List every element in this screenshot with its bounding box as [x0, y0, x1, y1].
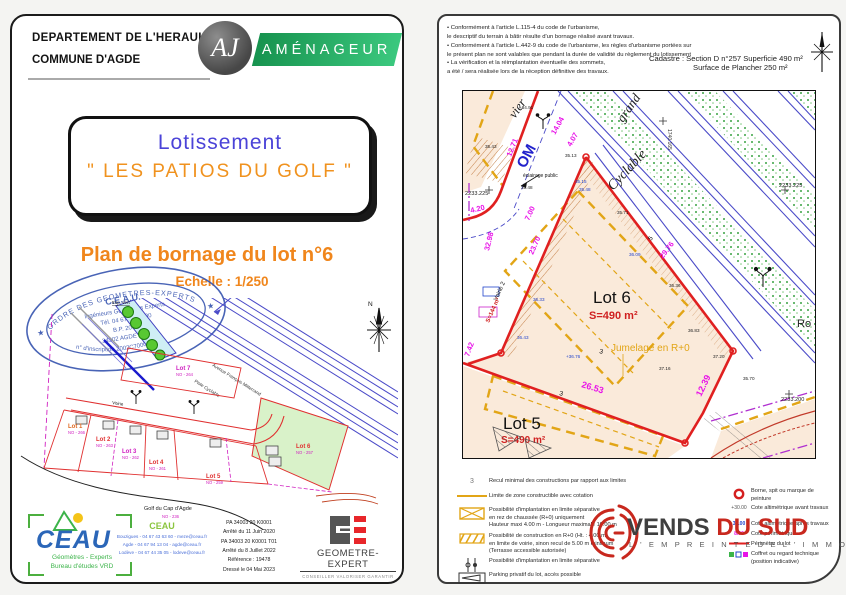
left-page: DEPARTEMENT DE L'HERAULT COMMUNE D'AGDE …: [10, 14, 404, 584]
contact-line: Bouzigues - 04 67 43 63 60 - meze@ceau.f…: [112, 533, 212, 541]
svg-text:14.04: 14.04: [549, 115, 567, 136]
lot6-area: S=490 m²: [589, 310, 638, 322]
golf-label: Golf du Cap d'Agde: [144, 506, 192, 512]
vends-wordmark: VENDS DU SUD: [627, 514, 808, 542]
svg-text:35.13: 35.13: [565, 153, 577, 158]
svg-text:2233.225: 2233.225: [465, 191, 488, 197]
svg-text:32.98: 32.98: [482, 231, 495, 251]
grid-top-label: 1740.165: [666, 129, 672, 150]
lot5-label: Lot 5: [503, 414, 541, 433]
svg-text:NO - 266: NO - 266: [68, 430, 86, 435]
svg-text:29.76: 29.76: [657, 240, 675, 260]
svg-text:36.33: 36.33: [533, 297, 545, 302]
separative-symbol: [463, 558, 481, 572]
svg-text:4.07: 4.07: [565, 131, 580, 148]
ro-fragment: Ro: [797, 318, 811, 330]
svg-text:NO - 257: NO - 257: [296, 450, 314, 455]
svg-text:NO - 236: NO - 236: [162, 514, 180, 519]
svg-text:36.43: 36.43: [517, 335, 529, 340]
svg-text:NO - 259: NO - 259: [206, 480, 224, 485]
department-title: DEPARTEMENT DE L'HERAULT: [32, 32, 212, 44]
contact-line: Agde - 04 67 94 13 04 - agde@ceau.fr: [112, 541, 212, 549]
legend-row: 3 Recul minimal des constructions par ra…: [455, 478, 626, 486]
geometre-expert-glyph: [326, 514, 370, 546]
street-label: Avenue François Mitterrand: [211, 363, 262, 397]
svg-text:35.43: 35.43: [485, 144, 497, 149]
parking-symbol: [458, 572, 486, 584]
esp-vert-label: Esp. vert: [112, 300, 131, 305]
permit-references: PA 34003 20 K0001 Arrêté du 11 Juin 2020…: [208, 519, 290, 575]
svg-text:36.83: 36.83: [688, 328, 700, 333]
lotissement-name: " LES PATIOS DU GOLF ": [71, 161, 369, 183]
svg-text:37.20: 37.20: [713, 354, 725, 359]
svg-text:2233.225: 2233.225: [779, 183, 802, 189]
jumelage-label: Jumelage en R+0: [611, 343, 690, 354]
amenageur-badge: AMÉNAGEUR: [252, 33, 402, 66]
bowtie-symbol: [459, 507, 485, 520]
commune-title: COMMUNE D'AGDE: [32, 54, 140, 66]
svg-text:36.09: 36.09: [629, 252, 641, 257]
lotissement-title: Lotissement: [71, 131, 369, 155]
ceau-contacts: CEAU Bouzigues - 04 67 43 63 60 - meze@c…: [112, 521, 212, 556]
north-arrow: [807, 30, 837, 74]
svg-text:35.48: 35.48: [579, 187, 591, 192]
geometre-expert-logo: GEOMETRE-EXPERT CONSEILLER VALORISER GAR…: [300, 514, 396, 579]
svg-text:7.00: 7.00: [523, 205, 537, 222]
title-box: Lotissement " LES PATIOS DU GOLF ": [68, 116, 372, 216]
s144-label: S=144 m²: [484, 297, 501, 324]
hatch-symbol: [459, 533, 485, 544]
borne-symbol: [733, 488, 745, 500]
overview-site-plan: Avenue François Mitterrand Piste Cyclabl…: [16, 298, 398, 530]
detail-plan: vier grand Cyclable 1740.165 OM éclairag…: [462, 90, 816, 459]
svg-text:NO - 263: NO - 263: [96, 443, 114, 448]
svg-text:35.71: 35.71: [617, 210, 629, 215]
ceau-logo-word: CEAU: [36, 526, 111, 555]
svg-text:37.16: 37.16: [659, 366, 671, 371]
header-divider: [28, 78, 210, 80]
svg-text:7.42: 7.42: [463, 341, 476, 358]
legend-row: Possibilité d'implantation en limite sép…: [455, 558, 600, 572]
svg-text:35.70: 35.70: [743, 376, 755, 381]
vends-tagline: L ' E M P R E I N T E D E L ' I M M O B …: [629, 540, 846, 549]
svg-text:23.70: 23.70: [527, 235, 543, 256]
lot6-label: Lot 6: [593, 288, 631, 307]
svg-text:35.15: 35.15: [575, 179, 587, 184]
svg-text:NO - 261: NO - 261: [149, 466, 167, 471]
right-page: • Conformément à l'article L.115-4 du co…: [437, 14, 841, 584]
north-arrow: [367, 308, 391, 352]
svg-text:35.48: 35.48: [521, 185, 533, 190]
svg-text:+36.76: +36.76: [566, 354, 581, 359]
legend-row: Parking privatif du lot, accès possible: [455, 572, 581, 584]
svg-text:2233.200: 2233.200: [781, 397, 804, 403]
svg-text:NO - 262: NO - 262: [122, 455, 140, 460]
eclairage-label: éclairage public: [523, 173, 558, 179]
aj-logo: AJ: [198, 21, 252, 75]
svg-text:+34.91: +34.91: [519, 105, 534, 110]
vends-du-sud-logo: VENDS DU SUD L ' E M P R E I N T E D E L…: [585, 500, 837, 572]
north-letter: N: [368, 301, 373, 308]
contact-line: Lodève - 04 67 44 35 05 - lodeve@ceau.fr: [112, 549, 212, 557]
legend-row: Limite de zone constructible avec cotati…: [455, 493, 593, 501]
svg-text:NO - 264: NO - 264: [176, 372, 194, 377]
svg-text:36.36: 36.36: [669, 283, 681, 288]
